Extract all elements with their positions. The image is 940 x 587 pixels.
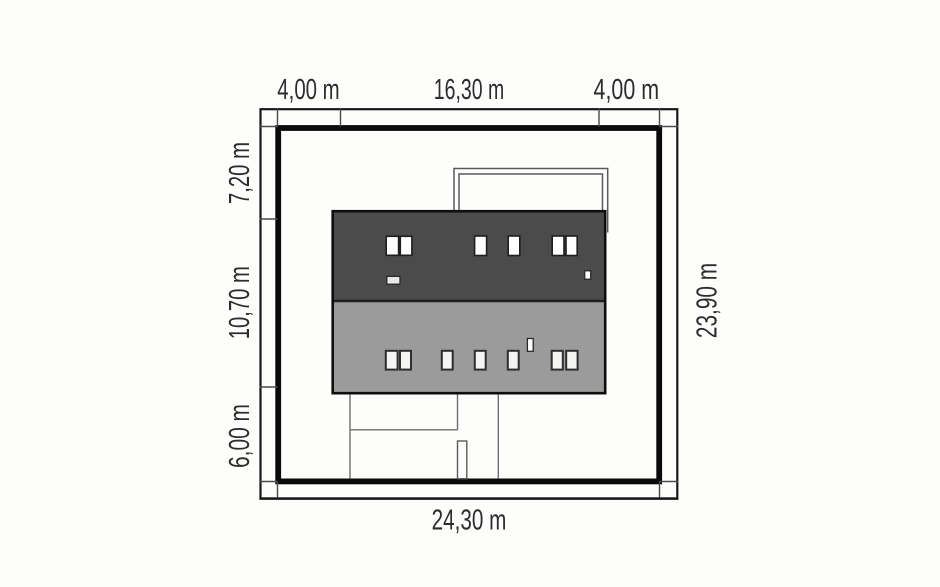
svg-text:10,70 m: 10,70 m [224,266,256,339]
svg-text:23,90 m: 23,90 m [692,263,724,338]
svg-text:24,30 m: 24,30 m [432,505,507,537]
svg-text:4,00 m: 4,00 m [277,74,339,106]
svg-text:4,00 m: 4,00 m [594,74,660,106]
svg-text:6,00 m: 6,00 m [224,404,256,468]
svg-text:16,30 m: 16,30 m [434,74,504,106]
svg-text:7,20 m: 7,20 m [224,142,256,204]
